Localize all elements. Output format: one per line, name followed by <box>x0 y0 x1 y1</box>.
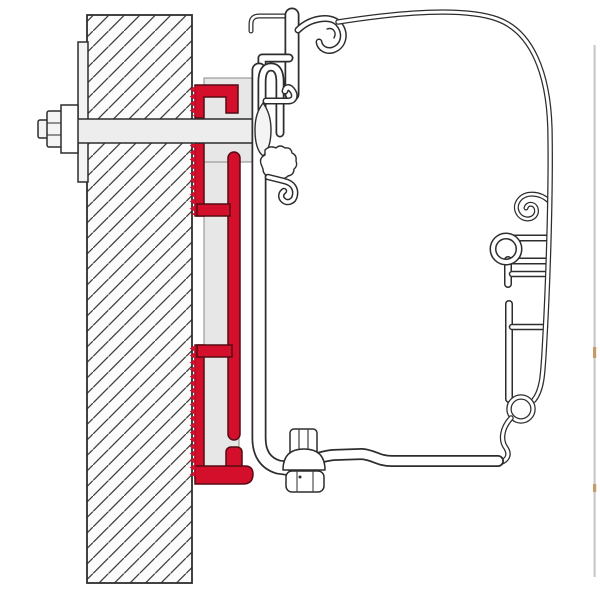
diagram-canvas <box>0 0 600 600</box>
screw-dimple <box>299 476 302 479</box>
bolt-washer <box>61 105 78 153</box>
bracket-web-lower <box>197 345 232 357</box>
knurled-interlock <box>261 146 297 179</box>
rail-profile <box>251 12 550 492</box>
image-right-border <box>593 45 596 577</box>
mounting-plate <box>78 42 88 182</box>
bracket-base <box>195 466 253 484</box>
bolt-shaft <box>77 119 254 143</box>
bracket-rail <box>228 152 240 440</box>
edge-tick-1 <box>593 347 596 358</box>
wall-cross-section <box>87 15 192 583</box>
bracket-wall-bar-low <box>195 345 204 478</box>
hook-inner-curl <box>327 29 335 38</box>
adapter-diagram <box>0 0 600 600</box>
edge-tick-2 <box>593 484 596 492</box>
bracket-web-upper <box>197 204 230 216</box>
screw-hex-head <box>286 471 324 492</box>
bolt-hex-head <box>47 111 62 147</box>
